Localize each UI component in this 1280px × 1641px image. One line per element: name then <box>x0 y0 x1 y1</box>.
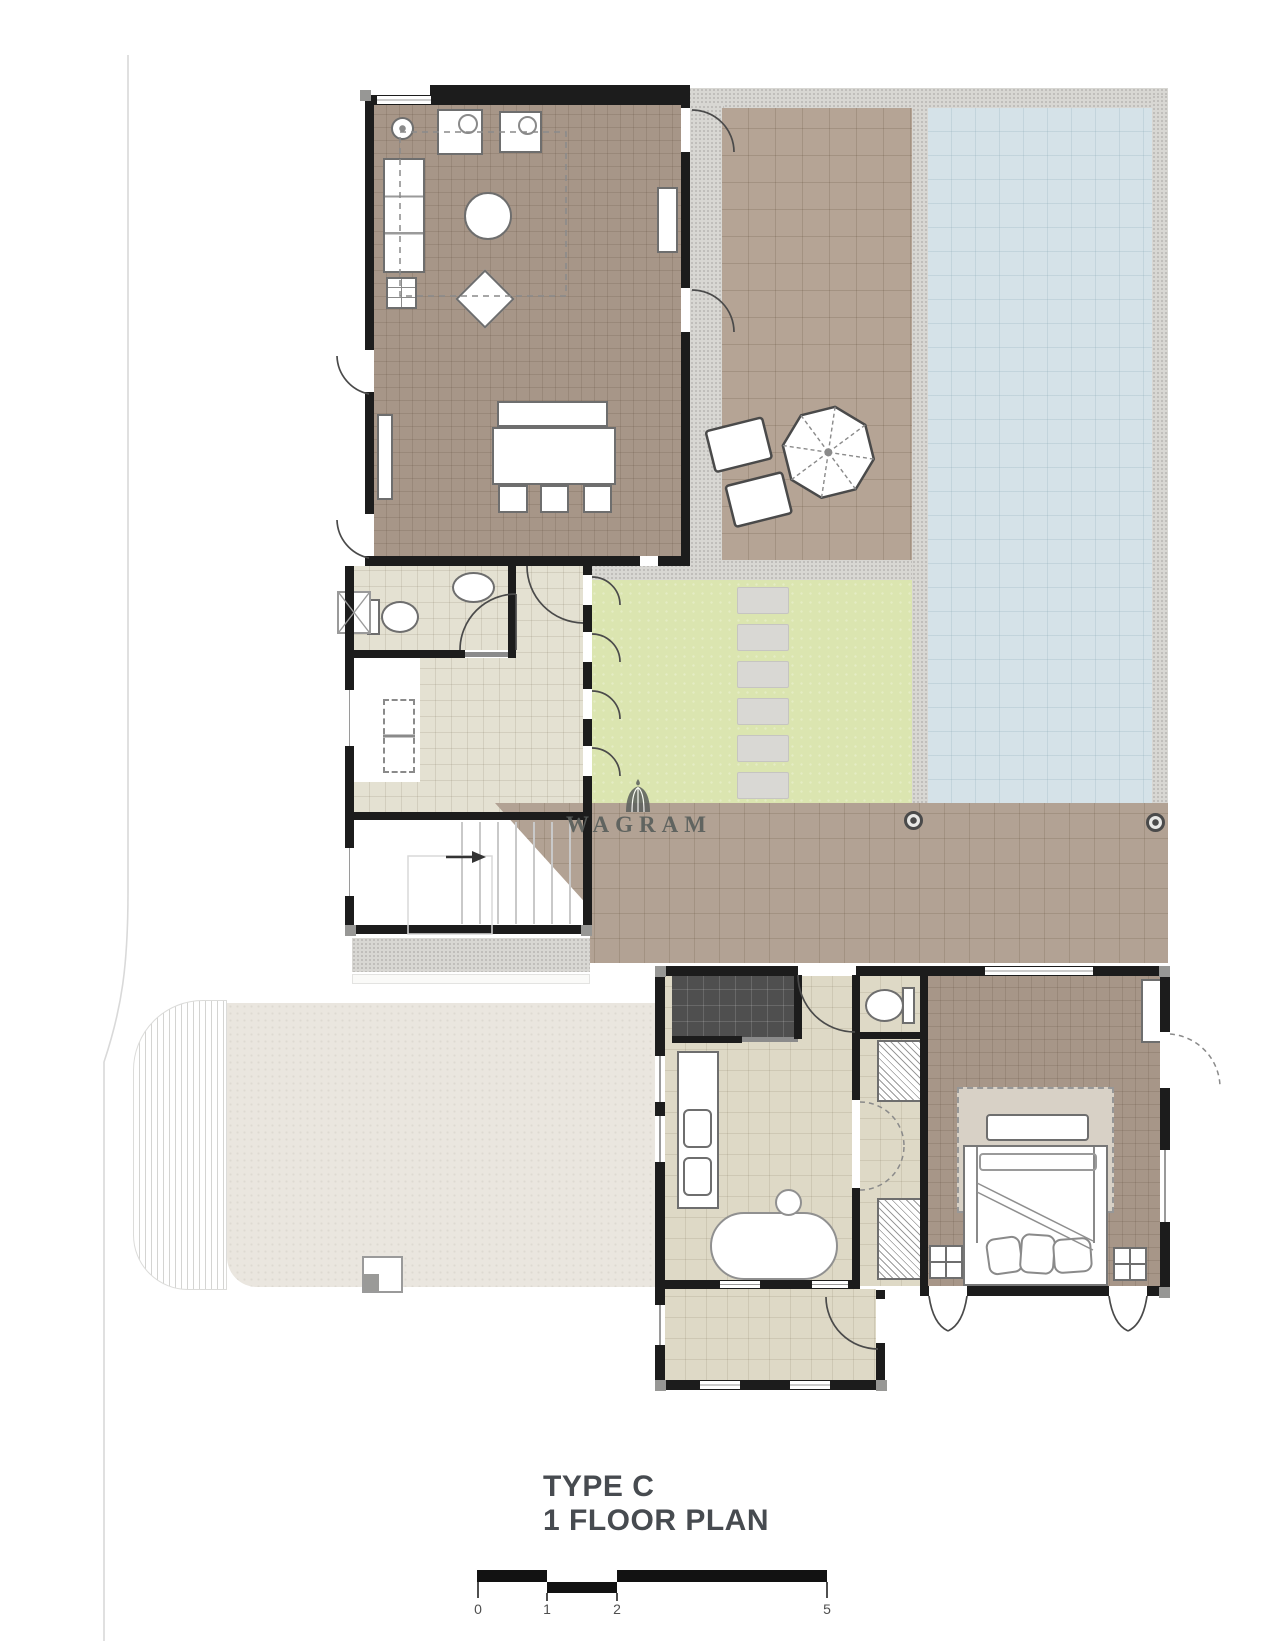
kitchen-tiled-area <box>420 658 583 812</box>
window <box>377 96 431 104</box>
window <box>655 1305 665 1345</box>
scale-label: 5 <box>815 1601 839 1617</box>
window <box>720 1281 760 1288</box>
stepping-stone <box>737 624 789 651</box>
window <box>700 1381 740 1389</box>
wall <box>345 925 592 934</box>
floor-plan-canvas: WAGRAM TYPE C 1 FLOOR PLAN 0 1 2 5 <box>0 0 1280 1641</box>
pool-rim-left <box>912 108 928 803</box>
window <box>812 1281 848 1288</box>
nightstand <box>929 1245 963 1279</box>
wardrobe <box>877 1198 923 1280</box>
door-opening <box>640 556 658 566</box>
door-sill <box>465 652 513 657</box>
dining-chair <box>583 485 612 513</box>
dining-table <box>492 427 616 485</box>
wall <box>794 975 802 1039</box>
wall <box>365 95 374 566</box>
door-opening <box>876 1299 885 1343</box>
corner-post <box>655 966 666 977</box>
driveway-court <box>227 1003 660 1287</box>
window <box>345 848 354 896</box>
door-opening <box>365 350 374 392</box>
porch-step <box>352 974 590 984</box>
terrace-walkway <box>690 105 724 560</box>
toilet-bowl <box>381 601 419 633</box>
washbasin <box>452 572 495 603</box>
dining-bench <box>497 401 608 427</box>
bath-stool <box>775 1189 802 1216</box>
stepping-stone <box>737 735 789 762</box>
pillow <box>1052 1237 1093 1275</box>
vanity-sink <box>683 1109 712 1148</box>
entry-porch <box>352 938 590 972</box>
wall <box>1160 966 1170 1298</box>
scale-label: 2 <box>605 1601 629 1617</box>
sofa <box>383 158 425 273</box>
corner-post <box>345 925 356 936</box>
property-boundary-line <box>104 55 128 1641</box>
lower-room-floor <box>665 1289 876 1380</box>
wardrobe <box>877 1040 923 1102</box>
door-opening <box>1109 1286 1147 1296</box>
dining-chair <box>540 485 569 513</box>
scale-tick <box>477 1582 479 1598</box>
scale-tick <box>826 1582 828 1598</box>
corner-post <box>1159 1287 1170 1298</box>
door-opening <box>852 1100 860 1188</box>
door-opening <box>681 288 690 332</box>
outdoor-shower-unit <box>337 591 371 634</box>
door-opening <box>798 966 856 976</box>
door-opening <box>365 514 374 556</box>
wall <box>430 85 690 95</box>
stepping-stone <box>737 772 789 799</box>
scale-segment <box>477 1570 547 1582</box>
pool-rim-right <box>1152 95 1168 803</box>
deck-column <box>1146 813 1165 832</box>
bed-rail <box>965 1147 978 1243</box>
corner-post <box>360 90 371 101</box>
window <box>985 967 1093 975</box>
armchair <box>499 111 542 153</box>
pillow <box>985 1235 1025 1277</box>
watermark <box>616 778 660 814</box>
watermark-wordmark: WAGRAM <box>548 812 730 838</box>
window <box>790 1381 830 1389</box>
wall-shelf <box>657 187 678 253</box>
armchair <box>437 109 483 155</box>
window <box>655 1116 665 1162</box>
door-sill <box>742 1037 798 1042</box>
door-opening <box>583 575 592 605</box>
scale-segment <box>617 1570 827 1582</box>
scale-tick <box>546 1593 548 1601</box>
vanity-sink <box>683 1157 712 1196</box>
door-opening <box>929 1286 967 1296</box>
bed-blanket-fold <box>979 1153 1097 1171</box>
wall <box>852 1032 928 1039</box>
swimming-pool <box>928 108 1152 803</box>
window <box>345 690 354 746</box>
wall <box>655 1380 885 1390</box>
terrace-deck <box>722 108 912 560</box>
door-opening <box>583 632 592 662</box>
corner-post <box>1159 966 1170 977</box>
stepping-stone <box>737 587 789 614</box>
wall <box>345 650 465 658</box>
bed-bench <box>986 1114 1089 1141</box>
deck-column <box>904 811 923 830</box>
scale-tick <box>616 1593 618 1601</box>
window <box>655 1056 665 1102</box>
corner-post <box>655 1380 666 1391</box>
door-opening <box>681 108 690 152</box>
dining-chair <box>498 485 528 513</box>
floor-lamp <box>391 117 414 140</box>
toilet-bowl <box>865 989 904 1022</box>
nightstand <box>1113 1247 1147 1281</box>
bed <box>963 1145 1108 1286</box>
wall <box>508 566 516 658</box>
door-opening <box>1160 1032 1170 1088</box>
coffee-table-round <box>464 192 512 240</box>
stepping-stone <box>737 661 789 688</box>
wall <box>672 1036 742 1043</box>
scale-label: 1 <box>535 1601 559 1617</box>
corner-post <box>581 925 592 936</box>
side-table-grid <box>386 277 417 309</box>
scale-label: 0 <box>466 1601 490 1617</box>
console-shelf <box>377 414 393 500</box>
plan-type-title: TYPE C <box>543 1470 769 1504</box>
kitchen-tiled-corner <box>354 782 420 812</box>
kitchen-appliance <box>383 699 415 773</box>
plan-floor-title: 1 FLOOR PLAN <box>543 1504 769 1538</box>
pool-rim-top <box>688 88 1168 108</box>
shower-dark <box>672 975 798 1037</box>
gate-post-box <box>362 1256 403 1293</box>
door-opening <box>583 689 592 719</box>
wall <box>920 975 928 1286</box>
dome-icon <box>616 778 660 814</box>
scale-segment <box>547 1582 617 1593</box>
stepping-stone <box>737 698 789 725</box>
driveway-ramp-hatch <box>133 1000 227 1290</box>
title-block: TYPE C 1 FLOOR PLAN <box>543 1470 769 1538</box>
corner-post <box>876 1380 887 1391</box>
bathtub <box>710 1212 838 1280</box>
door-opening <box>583 746 592 776</box>
pillow <box>1019 1233 1057 1275</box>
window <box>1160 1150 1170 1222</box>
